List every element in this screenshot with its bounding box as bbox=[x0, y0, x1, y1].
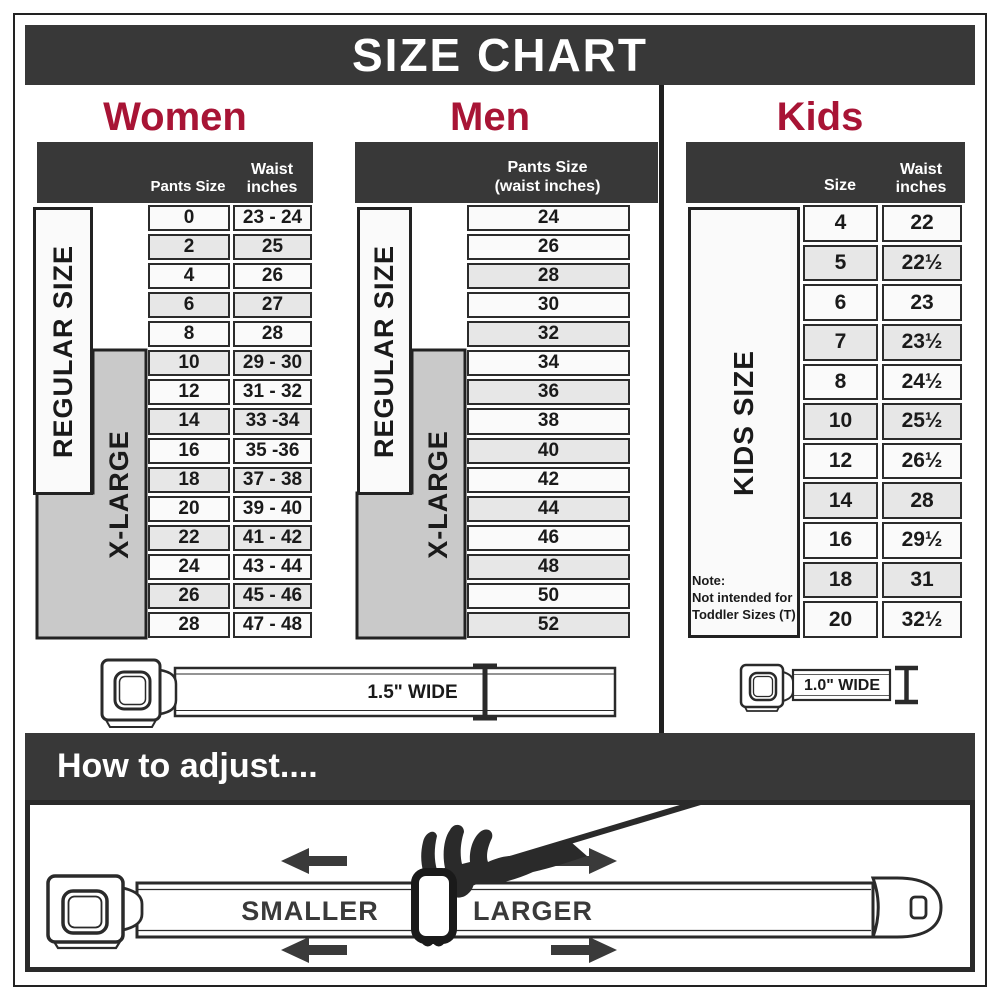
smaller-label: SMALLER bbox=[230, 896, 390, 927]
size-chart-graphic: SIZE CHART Women Men Kids Pants Size Wai… bbox=[0, 0, 1000, 1000]
table-cell: 50 bbox=[467, 583, 630, 609]
table-cell: 24½ bbox=[882, 364, 962, 401]
table-cell: 5 bbox=[803, 245, 878, 282]
table-cell: 4 bbox=[148, 263, 230, 289]
table-cell: 0 bbox=[148, 205, 230, 231]
title-bar: SIZE CHART bbox=[25, 25, 975, 85]
table-cell: 33 -34 bbox=[233, 408, 312, 434]
table-cell: 39 - 40 bbox=[233, 496, 312, 522]
table-cell: 42 bbox=[467, 467, 630, 493]
table-cell: 8 bbox=[148, 321, 230, 347]
section-divider bbox=[659, 85, 664, 733]
kids-col-size: Size bbox=[801, 177, 879, 195]
table-cell: 22½ bbox=[882, 245, 962, 282]
table-cell: 30 bbox=[467, 292, 630, 318]
table-cell: 14 bbox=[803, 482, 878, 519]
table-cell: 8 bbox=[803, 364, 878, 401]
women-col-waist-line1: Waist bbox=[232, 161, 312, 179]
table-cell: 31 bbox=[882, 562, 962, 599]
table-cell: 48 bbox=[467, 554, 630, 580]
table-cell: 35 -36 bbox=[233, 438, 312, 464]
men-col-pants-size: Pants Size (waist inches) bbox=[465, 158, 630, 196]
table-cell: 20 bbox=[148, 496, 230, 522]
table-cell: 4 bbox=[803, 205, 878, 242]
belt-tip bbox=[873, 878, 941, 937]
table-cell: 16 bbox=[803, 522, 878, 559]
table-cell: 47 - 48 bbox=[233, 612, 312, 638]
women-col-waist-inches: Waist inches bbox=[232, 161, 312, 197]
adjust-title: How to adjust.... bbox=[57, 747, 318, 786]
table-cell: 32½ bbox=[882, 601, 962, 638]
women-xlarge-label: X-LARGE bbox=[91, 350, 148, 638]
table-cell: 26 bbox=[148, 583, 230, 609]
table-cell: 25½ bbox=[882, 403, 962, 440]
table-cell: 32 bbox=[467, 321, 630, 347]
table-cell: 12 bbox=[803, 443, 878, 480]
table-cell: 37 - 38 bbox=[233, 467, 312, 493]
kids-belt-width-label: 1.0" WIDE bbox=[792, 677, 892, 695]
page-title: SIZE CHART bbox=[352, 28, 648, 82]
table-cell: 31 - 32 bbox=[233, 379, 312, 405]
table-cell: 29 - 30 bbox=[233, 350, 312, 376]
kids-col-waist-line1: Waist bbox=[880, 161, 962, 179]
women-regular-size-label: REGULAR SIZE bbox=[33, 207, 93, 495]
kids-section-title: Kids bbox=[720, 95, 920, 139]
men-xlarge-label: X-LARGE bbox=[410, 350, 467, 638]
women-pants-size-column: 0 2 4 6 8 10 12 14 16 18 20 22 24 26 28 bbox=[148, 205, 230, 638]
table-cell: 28 bbox=[467, 263, 630, 289]
table-cell: 41 - 42 bbox=[233, 525, 312, 551]
larger-label: LARGER bbox=[453, 896, 613, 927]
table-cell: 25 bbox=[233, 234, 312, 260]
men-col-header-line1: Pants Size bbox=[465, 158, 630, 177]
kids-note: Note: Not intended for Toddler Sizes (T) bbox=[692, 572, 802, 623]
table-cell: 16 bbox=[148, 438, 230, 464]
adult-belt-width-label: 1.5" WIDE bbox=[340, 682, 485, 704]
table-cell: 10 bbox=[148, 350, 230, 376]
table-cell: 26½ bbox=[882, 443, 962, 480]
table-cell: 28 bbox=[233, 321, 312, 347]
table-cell: 12 bbox=[148, 379, 230, 405]
kids-table-header: Size Waist inches bbox=[686, 142, 965, 203]
table-cell: 52 bbox=[467, 612, 630, 638]
table-cell: 22 bbox=[882, 205, 962, 242]
table-cell: 34 bbox=[467, 350, 630, 376]
table-cell: 18 bbox=[803, 562, 878, 599]
kids-note-line3: Toddler Sizes (T) bbox=[692, 606, 802, 623]
men-table-header: Pants Size (waist inches) bbox=[355, 142, 658, 203]
table-cell: 26 bbox=[233, 263, 312, 289]
table-cell: 23 bbox=[882, 284, 962, 321]
women-col-waist-line2: inches bbox=[232, 179, 312, 197]
kids-size-column: 4 5 6 7 8 10 12 14 16 18 20 bbox=[803, 205, 878, 638]
table-cell: 29½ bbox=[882, 522, 962, 559]
adjust-section-title-bar: How to adjust.... bbox=[25, 733, 975, 800]
table-cell: 22 bbox=[148, 525, 230, 551]
women-section-title: Women bbox=[75, 95, 275, 139]
buckle-latch bbox=[123, 888, 142, 930]
men-pants-size-column: 24 26 28 30 32 34 36 38 40 42 44 46 48 5… bbox=[467, 205, 630, 638]
table-cell: 46 bbox=[467, 525, 630, 551]
kids-col-waist-inches: Waist inches bbox=[880, 161, 962, 197]
table-cell: 23 - 24 bbox=[233, 205, 312, 231]
table-cell: 45 - 46 bbox=[233, 583, 312, 609]
men-col-header-line2: (waist inches) bbox=[465, 177, 630, 196]
table-cell: 28 bbox=[882, 482, 962, 519]
table-cell: 36 bbox=[467, 379, 630, 405]
table-cell: 6 bbox=[803, 284, 878, 321]
table-cell: 20 bbox=[803, 601, 878, 638]
table-cell: 28 bbox=[148, 612, 230, 638]
table-cell: 24 bbox=[148, 554, 230, 580]
table-cell: 38 bbox=[467, 408, 630, 434]
table-cell: 7 bbox=[803, 324, 878, 361]
buckle-latch bbox=[160, 670, 176, 714]
table-cell: 24 bbox=[467, 205, 630, 231]
kids-waist-column: 22 22½ 23 23½ 24½ 25½ 26½ 28 29½ 31 32½ bbox=[882, 205, 962, 638]
table-cell: 44 bbox=[467, 496, 630, 522]
slider-clasp bbox=[415, 872, 453, 940]
table-cell: 2 bbox=[148, 234, 230, 260]
kids-col-waist-line2: inches bbox=[880, 179, 962, 197]
table-cell: 18 bbox=[148, 467, 230, 493]
table-cell: 43 - 44 bbox=[233, 554, 312, 580]
men-section-title: Men bbox=[390, 95, 590, 139]
kids-note-line1: Note: bbox=[692, 572, 802, 589]
table-cell: 23½ bbox=[882, 324, 962, 361]
women-waist-column: 23 - 24 25 26 27 28 29 - 30 31 - 32 33 -… bbox=[233, 205, 312, 638]
table-cell: 6 bbox=[148, 292, 230, 318]
women-col-pants-size: Pants Size bbox=[146, 178, 230, 195]
width-measure-icon bbox=[895, 668, 918, 702]
men-regular-size-label: REGULAR SIZE bbox=[357, 207, 412, 495]
table-cell: 26 bbox=[467, 234, 630, 260]
table-cell: 14 bbox=[148, 408, 230, 434]
kids-note-line2: Not intended for bbox=[692, 589, 802, 606]
adjust-belt-illustration bbox=[25, 800, 975, 972]
table-cell: 10 bbox=[803, 403, 878, 440]
table-cell: 27 bbox=[233, 292, 312, 318]
women-table-header: Pants Size Waist inches bbox=[37, 142, 313, 203]
table-cell: 40 bbox=[467, 438, 630, 464]
